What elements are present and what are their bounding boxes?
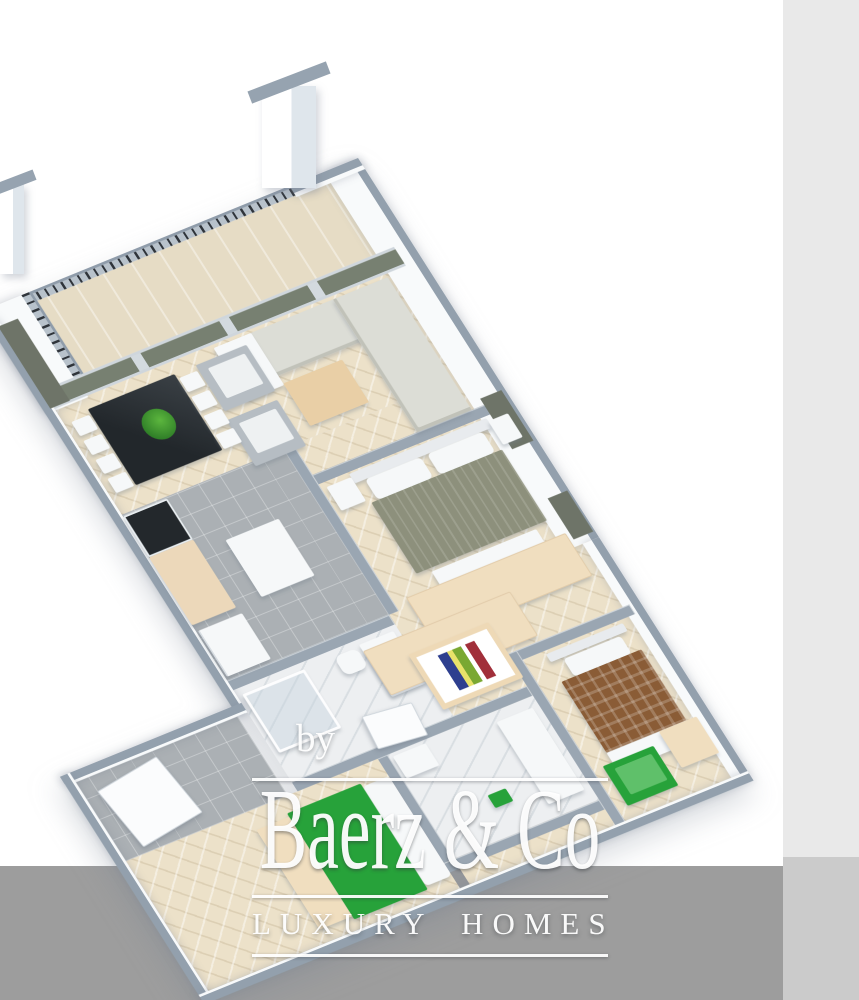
floorplan-render: by Baerz & Co LUXURY HOMES bbox=[0, 0, 859, 1000]
facade-pillar-top bbox=[262, 86, 316, 188]
watermark-rule-top bbox=[252, 778, 608, 781]
watermark: by Baerz & Co LUXURY HOMES bbox=[252, 700, 608, 970]
armchair-2-cushion bbox=[239, 409, 295, 454]
watermark-by-label: by bbox=[296, 719, 335, 758]
hanging-clothes bbox=[430, 638, 503, 693]
right-side-panel bbox=[783, 0, 859, 1000]
facade-pillar-left bbox=[0, 184, 24, 274]
green-armchair-cushion bbox=[614, 754, 667, 795]
watermark-brand-name: Baerz & Co bbox=[260, 772, 601, 887]
watermark-rule-middle bbox=[252, 895, 608, 898]
watermark-rule-bottom bbox=[252, 954, 608, 957]
bottom-right-gray-block bbox=[783, 857, 859, 1000]
watermark-tagline: LUXURY HOMES bbox=[252, 907, 608, 941]
armchair-1-cushion bbox=[208, 354, 264, 399]
